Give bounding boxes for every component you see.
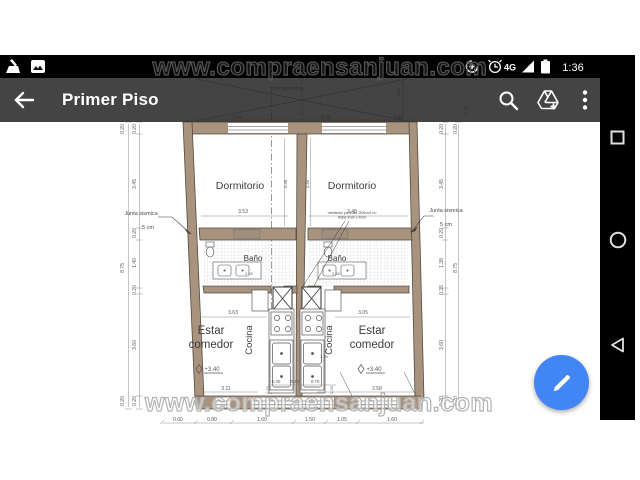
plan-label: 0.20 xyxy=(120,124,126,134)
plan-label: 0.20 xyxy=(439,396,445,406)
edit-fab[interactable] xyxy=(534,355,589,410)
pencil-icon xyxy=(551,372,573,394)
plan-label: 1.50 xyxy=(305,417,315,423)
back-nav-button[interactable] xyxy=(600,325,635,365)
clock-text: 1:36 xyxy=(562,62,583,74)
plan-label: 0.20 xyxy=(329,385,334,394)
network-type: 4G xyxy=(504,63,516,73)
plan-label: Cocina xyxy=(324,325,335,355)
plan-label: 1.40 xyxy=(132,258,138,268)
plan-label: 0.20 xyxy=(439,228,445,238)
add-to-drive-button[interactable] xyxy=(528,78,568,122)
plan-label: Baño xyxy=(328,254,347,263)
plan-label: 3.11 xyxy=(221,386,231,392)
plan-label: 1.30 xyxy=(320,354,329,359)
plan-label: 0.20 xyxy=(132,124,138,134)
plan-label: Rejilla 40cm x 40cm xyxy=(338,216,367,220)
plan-label: 1.60 xyxy=(257,417,267,423)
plan-label: 0.20 xyxy=(453,124,459,134)
plan-label: comedor xyxy=(350,339,395,351)
plan-label: 0.20 xyxy=(132,228,138,238)
plan-label: 1.38 xyxy=(439,258,445,268)
search-icon xyxy=(497,89,519,111)
plan-label: 0.80 xyxy=(207,417,217,423)
plan-label: Estar xyxy=(198,325,225,337)
home-circle-icon xyxy=(609,231,627,249)
plan-label: Estar xyxy=(359,325,386,337)
plan-label: 2.58 xyxy=(372,386,382,392)
plan-label: 0.40 xyxy=(272,379,281,384)
drive-add-icon xyxy=(536,88,560,112)
android-nav-bar xyxy=(600,55,635,420)
plan-label: 1.60 xyxy=(387,417,397,423)
recents-button[interactable] xyxy=(600,117,635,157)
overflow-menu-button[interactable] xyxy=(568,78,602,122)
plan-label: 0.20 xyxy=(132,285,138,295)
plan-label: 3.45 xyxy=(305,179,310,188)
plan-label: 3.45 xyxy=(132,179,138,189)
plan-label: Baño xyxy=(244,254,263,263)
broom-icon xyxy=(6,59,20,73)
plan-label: 3.63 xyxy=(228,310,238,316)
plan-label: 5 cm xyxy=(142,225,154,231)
plan-label: 2.50 xyxy=(332,271,341,276)
recents-square-icon xyxy=(610,130,625,145)
back-button[interactable] xyxy=(0,78,48,122)
plan-label: 0.20 xyxy=(439,124,445,134)
plan-label: Dormitorio xyxy=(328,180,377,192)
plan-label: 3.53 xyxy=(238,209,248,215)
back-triangle-icon xyxy=(610,336,626,354)
plan-label: Cocina xyxy=(244,325,255,355)
plan-label: 3.45 xyxy=(283,179,288,188)
plan-label: 3.45 xyxy=(439,179,445,189)
back-arrow-icon xyxy=(13,89,35,111)
overflow-menu-icon xyxy=(582,89,588,111)
plan-label: 0.20 xyxy=(132,396,138,406)
plan-label: 3.05 xyxy=(358,310,368,316)
plan-label: 0.60 xyxy=(173,417,183,423)
plan-label: 8.75 xyxy=(453,263,459,273)
signal-icon xyxy=(522,61,534,73)
plan-label: 3.60 xyxy=(132,340,138,350)
plan-label: 0.20 xyxy=(120,396,126,406)
plan-label: 0.60 xyxy=(291,379,300,384)
plan-label: 8.75 xyxy=(120,263,126,273)
plan-label: 3.60 xyxy=(439,340,445,350)
plan-label: Junta sismica xyxy=(429,208,463,214)
plan-label: +3.40 xyxy=(204,367,220,373)
photo-icon xyxy=(31,60,45,73)
plan-label: 2.50 xyxy=(245,271,254,276)
plan-label: Junta sismica xyxy=(124,211,158,217)
app-toolbar: Primer Piso xyxy=(0,78,602,122)
search-button[interactable] xyxy=(488,78,528,122)
home-button[interactable] xyxy=(600,220,635,260)
plan-label: Dormitorio xyxy=(216,180,265,192)
plan-label: 0.35 xyxy=(439,285,445,295)
phone-screenshot: DormitorioDormitorioBañoBañoCocinaCocina… xyxy=(0,0,640,480)
plan-label: +3.40 xyxy=(366,367,382,373)
plan-label: 0.20 xyxy=(453,396,459,406)
battery-icon xyxy=(541,60,550,74)
plan-label: 0.70 xyxy=(311,379,320,384)
plan-label: 1.05 xyxy=(337,417,347,423)
plan-label: 0.20 xyxy=(265,385,270,394)
page-title: Primer Piso xyxy=(62,90,159,110)
status-bar: 4G 1:36 xyxy=(0,55,635,78)
data-saver-icon xyxy=(466,61,477,72)
plan-label: comedor xyxy=(189,339,234,351)
plan-label: 5 cm xyxy=(440,222,452,228)
plan-label: 3.48 xyxy=(347,209,357,215)
alarm-icon xyxy=(489,60,502,72)
